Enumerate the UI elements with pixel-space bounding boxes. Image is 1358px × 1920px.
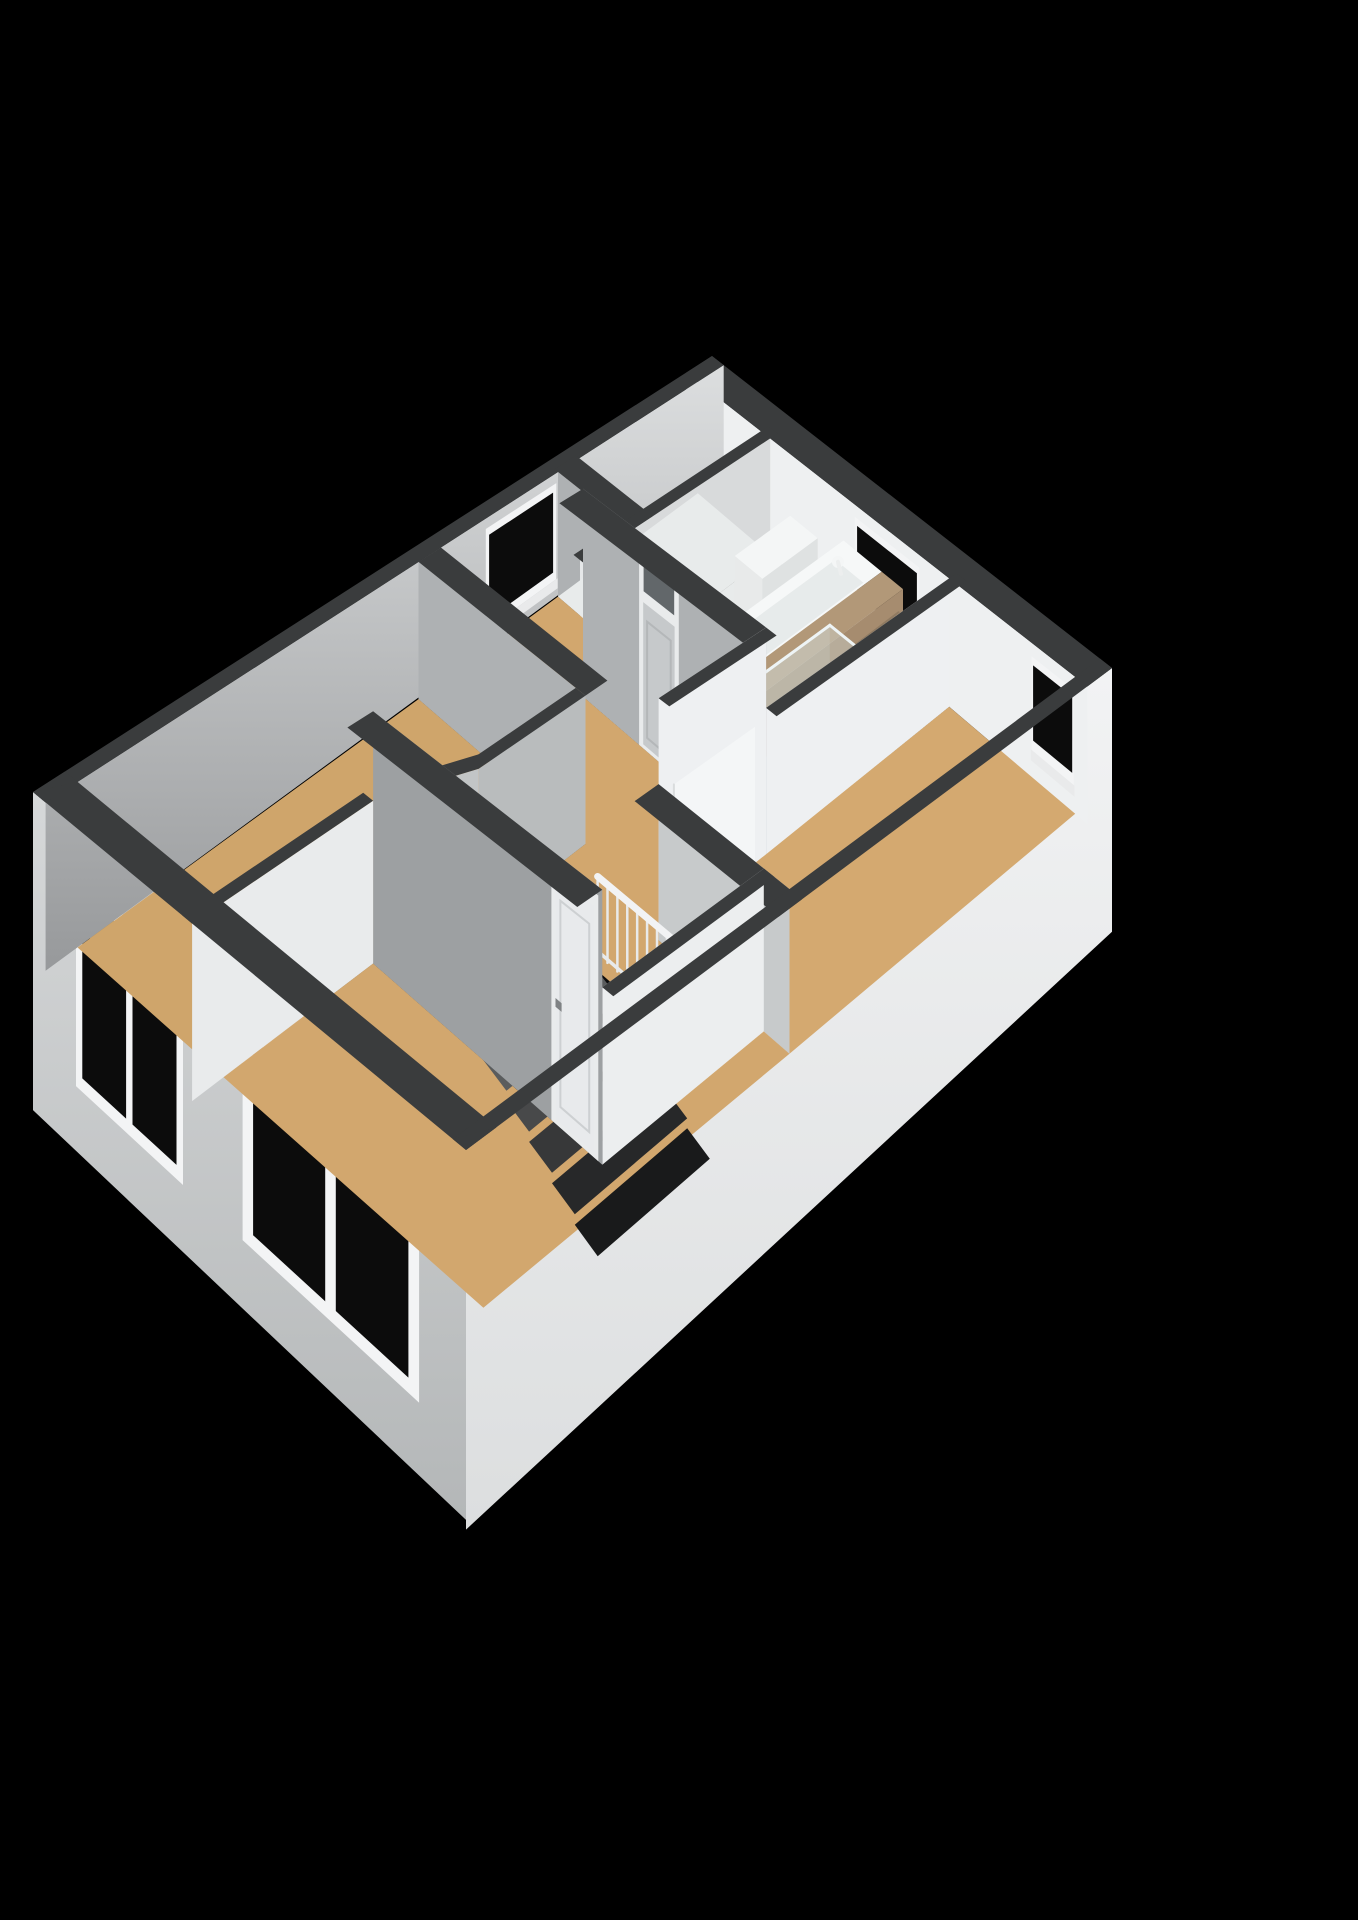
front-bedroom-door-leaf (556, 876, 594, 1152)
floorplan-3d-render (0, 0, 1358, 1920)
floorplan-3d-scene (0, 0, 1358, 1920)
